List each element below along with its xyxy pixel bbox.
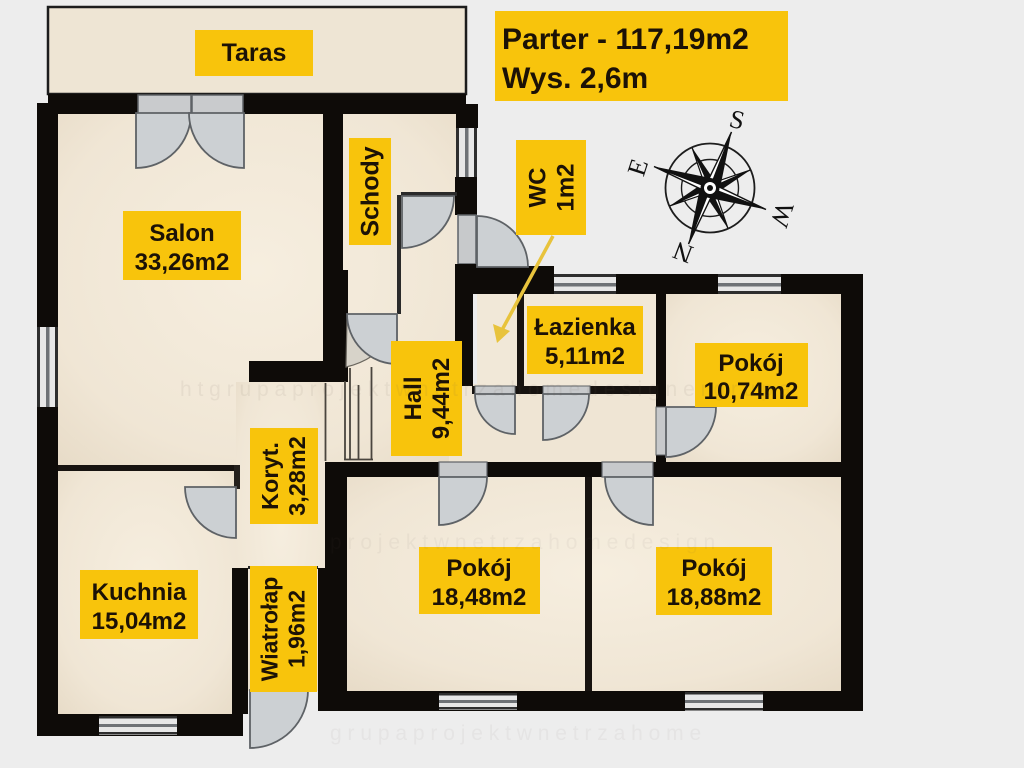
svg-text:3,28m2: 3,28m2 xyxy=(284,436,310,516)
svg-text:Łazienka: Łazienka xyxy=(534,314,636,341)
svg-text:Pokój: Pokój xyxy=(718,350,783,377)
svg-text:Parter - 117,19m2: Parter - 117,19m2 xyxy=(502,23,749,56)
svg-text:WC: WC xyxy=(525,168,552,208)
svg-text:Wiatrołap: Wiatrołap xyxy=(257,577,283,682)
svg-text:Taras: Taras xyxy=(222,39,287,67)
svg-text:1,96m2: 1,96m2 xyxy=(284,590,310,668)
svg-text:g r u p a p r o j e k t w n e: g r u p a p r o j e k t w n e t r z a h … xyxy=(330,722,701,745)
svg-text:18,88m2: 18,88m2 xyxy=(667,584,762,611)
svg-text:Wys. 2,6m: Wys. 2,6m xyxy=(502,62,648,95)
svg-text:Pokój: Pokój xyxy=(681,555,746,582)
svg-text:p r o j e k t w n e t r z a h: p r o j e k t w n e t r z a h o m e d e … xyxy=(330,531,715,554)
svg-text:Schody: Schody xyxy=(357,146,385,236)
svg-text:18,48m2: 18,48m2 xyxy=(432,584,527,611)
svg-text:15,04m2: 15,04m2 xyxy=(92,608,187,635)
svg-text:1m2: 1m2 xyxy=(553,163,580,211)
svg-text:Kuchnia: Kuchnia xyxy=(92,579,187,606)
svg-text:Pokój: Pokój xyxy=(446,555,511,582)
svg-text:Koryt.: Koryt. xyxy=(257,442,283,510)
svg-text:Salon: Salon xyxy=(149,220,214,247)
svg-text:33,26m2: 33,26m2 xyxy=(135,249,230,276)
svg-text:h t g r u p a p r o j e k t w: h t g r u p a p r o j e k t w n e t r z … xyxy=(180,378,791,401)
svg-text:5,11m2: 5,11m2 xyxy=(545,343,625,370)
